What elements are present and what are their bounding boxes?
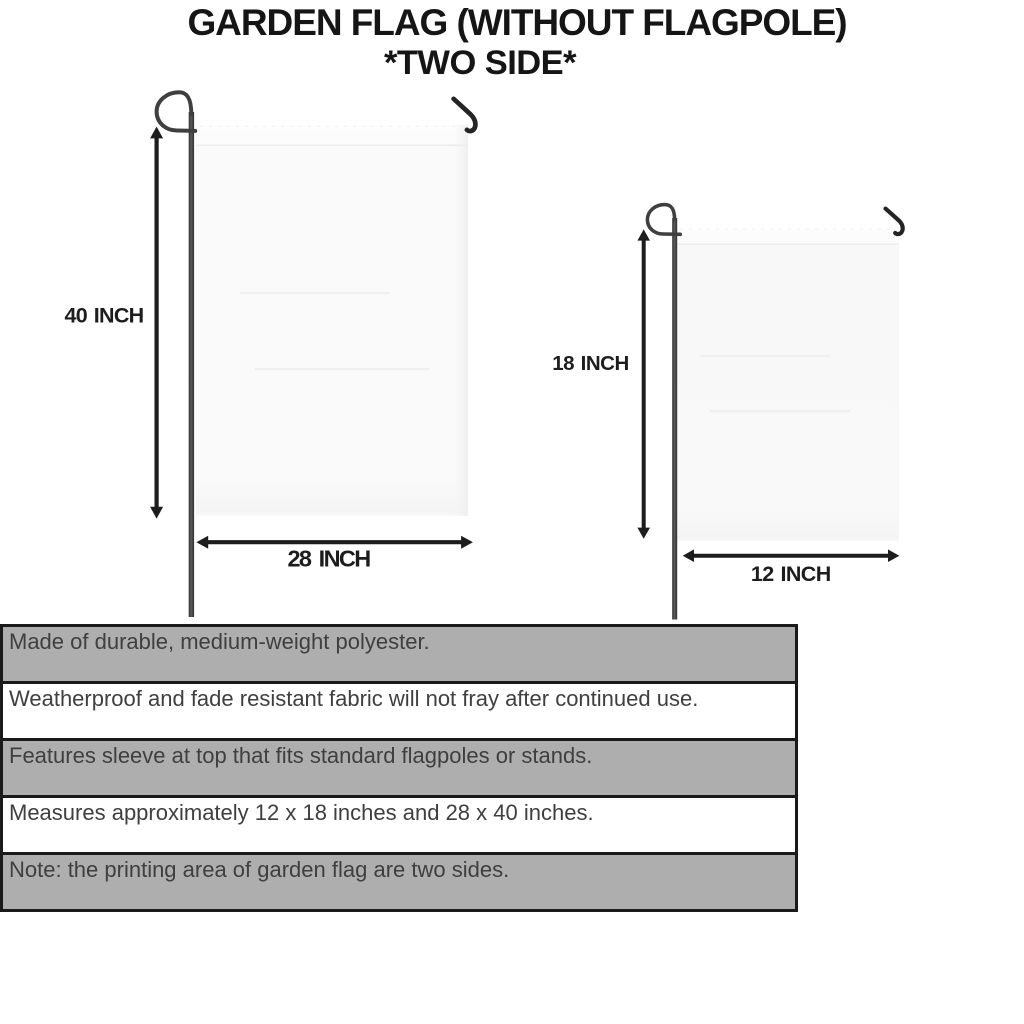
svg-text:40 INCH: 40 INCH xyxy=(64,304,143,328)
svg-text:12 INCH: 12 INCH xyxy=(751,562,831,586)
svg-text:18 INCH: 18 INCH xyxy=(552,352,629,375)
svg-text:28 INCH: 28 INCH xyxy=(287,546,370,572)
